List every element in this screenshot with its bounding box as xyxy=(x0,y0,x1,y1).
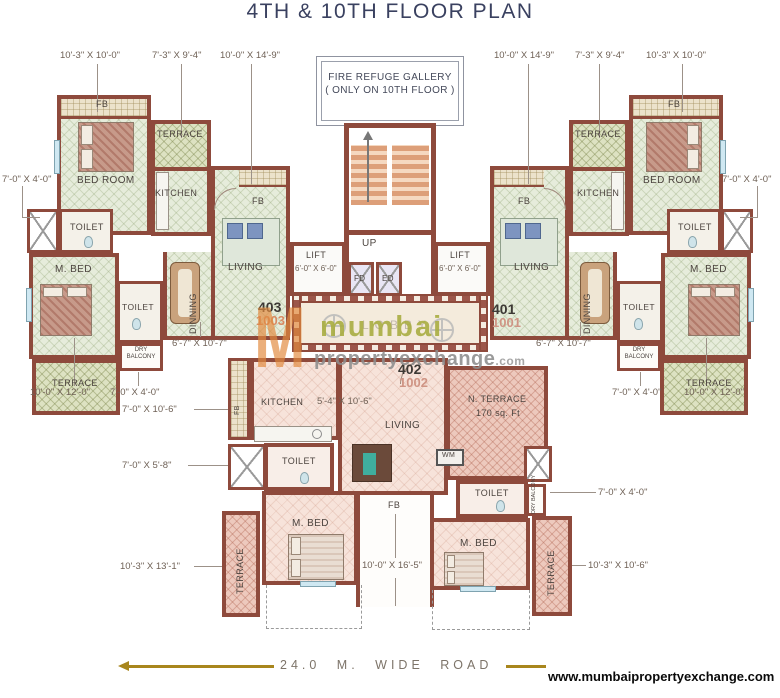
label-fb-bedroom-right: FB xyxy=(668,99,680,109)
label-wm: WM xyxy=(442,452,455,459)
watermark-brand2-text: propertyexchange xyxy=(314,348,495,370)
label-mbed-left: M. BED xyxy=(55,264,92,275)
label-terrace-center-right: TERRACE xyxy=(546,536,556,596)
flat-number-1002: 1002 xyxy=(399,375,428,390)
bed-icon xyxy=(444,552,484,586)
label-kitchen-center: KITCHEN xyxy=(261,397,303,407)
watermark-monogram: M xyxy=(254,302,306,375)
leader-line xyxy=(599,64,600,138)
dim-terrace-left: 10'-0" X 12'-0" xyxy=(30,387,90,398)
label-fb-kitchen-center: FB xyxy=(234,385,241,415)
dim-toilet-center-left: 7'-0" X 5'-8" xyxy=(122,460,171,471)
toilet-icon xyxy=(300,472,309,484)
label-dry-balcony-left: DRY BALCONY xyxy=(124,347,158,361)
label-toilet1-left: TOILET xyxy=(70,222,104,232)
label-n-terrace-area: 170 sq. Ft xyxy=(476,408,520,418)
label-dry-balcony-center-right: DRY BALCONY xyxy=(531,486,537,514)
leader-line xyxy=(251,64,252,184)
duct-shaft xyxy=(27,209,59,253)
leader-line xyxy=(580,322,581,337)
tv-cabinet-icon xyxy=(352,444,392,482)
wall-segment xyxy=(431,235,436,296)
toilet-icon xyxy=(496,500,505,512)
label-n-terrace: N. TERRACE xyxy=(468,394,526,404)
toilet-icon xyxy=(132,318,141,330)
label-fd: FD xyxy=(354,274,365,283)
dim-dinning-right: 6'-7" X 10'-7" xyxy=(536,338,591,349)
website-url: www.mumbaipropertyexchange.com xyxy=(548,669,774,684)
road-line xyxy=(128,665,274,668)
dim-kitchen-side-center: 7'-0" X 10'-6" xyxy=(122,404,177,415)
kitchen-counter-left xyxy=(156,172,169,230)
label-fb-living-left: FB xyxy=(252,196,264,206)
kitchen-counter-right xyxy=(611,172,624,230)
dim-living-right: 10'-0" X 14'-9" xyxy=(494,50,554,61)
leader-line xyxy=(682,64,683,112)
leader-line xyxy=(22,186,23,218)
dim-terrace-kitchen-right: 7'-3" X 9'-4" xyxy=(575,50,624,61)
dim-toilet-right: 7'-0" X 4'-0" xyxy=(722,174,771,185)
label-ed: ED xyxy=(382,274,394,283)
label-living-right: LIVING xyxy=(514,262,549,273)
label-fb-bedroom-left: FB xyxy=(96,99,108,109)
label-kitchen-right: KITCHEN xyxy=(577,188,619,198)
toilet-icon xyxy=(688,236,697,248)
label-terrace-top-right: TERRACE xyxy=(575,129,621,139)
label-fb-center: FB xyxy=(388,500,400,510)
leader-line xyxy=(528,64,529,184)
dim-fb-center: 10'-0" X 16'-5" xyxy=(362,560,422,571)
label-toilet-center-left: TOILET xyxy=(282,456,316,466)
stair-divider xyxy=(387,145,392,205)
lobby-balustrade-top xyxy=(292,294,488,303)
dim-toilet-left: 7'-0" X 4'-0" xyxy=(2,174,51,185)
window xyxy=(720,140,726,174)
road-line xyxy=(506,665,546,668)
watermark-tld: .com xyxy=(495,354,525,368)
duct-shaft xyxy=(228,444,266,490)
floor-plan: 4TH & 10TH FLOOR PLAN FIRE REFUGE GALLER… xyxy=(0,0,780,698)
page-title: 4TH & 10TH FLOOR PLAN xyxy=(0,0,780,24)
bed-icon xyxy=(78,122,134,172)
label-dry-balcony-right: DRY BALCONY xyxy=(622,347,656,361)
label-lift-left: LIFT xyxy=(306,250,326,260)
label-toilet-center-right: TOILET xyxy=(475,488,509,498)
dim-terrace-right: 10'-0" X 12'-0" xyxy=(684,387,744,398)
window xyxy=(748,288,754,322)
leader-line xyxy=(138,372,139,386)
fb-strip-living-left xyxy=(239,170,286,187)
dim-dry-balcony-center-right: 7'-0" X 4'-0" xyxy=(598,487,647,498)
room-toilet2-right xyxy=(617,281,663,343)
label-living-center: LIVING xyxy=(385,420,420,431)
fire-refuge-line1: FIRE REFUGE GALLERY xyxy=(316,72,464,83)
flat-number-1001: 1001 xyxy=(492,315,521,330)
label-dinning-left: DINNING xyxy=(188,272,198,334)
dim-kitchen-center: 5'-4" X 10'-6" xyxy=(317,396,372,407)
label-bedroom-left: BED ROOM xyxy=(77,175,135,186)
label-toilet2-right: TOILET xyxy=(623,302,655,312)
leader-line xyxy=(194,566,222,567)
leader-line xyxy=(640,372,641,386)
sofa-icon xyxy=(500,218,558,266)
dim-lift-left: 6'-0" X 6'-0" xyxy=(295,264,337,273)
dim-dry-balcony-left: 7'-0" X 4'-0" xyxy=(110,387,159,398)
wall-segment xyxy=(344,235,349,296)
label-dinning-right: DINNING xyxy=(582,272,592,334)
bed-icon xyxy=(688,284,740,336)
sofa-icon xyxy=(222,218,280,266)
dim-bedroom-left: 10'-3" X 10'-0" xyxy=(60,50,120,61)
leader-line xyxy=(22,217,40,218)
label-lift-right: LIFT xyxy=(450,250,470,260)
leader-line xyxy=(395,578,396,606)
window xyxy=(300,581,336,587)
dim-terrace-center-left: 10'-3" X 13'-1" xyxy=(120,561,180,572)
label-mbed-center-right: M. BED xyxy=(460,538,497,549)
leader-line xyxy=(757,186,758,218)
dim-terrace-kitchen-left: 7'-3" X 9'-4" xyxy=(152,50,201,61)
label-terrace-center-left: TERRACE xyxy=(235,534,245,594)
leader-line xyxy=(740,217,758,218)
leader-line xyxy=(188,465,228,466)
window xyxy=(26,288,32,322)
label-mbed-right: M. BED xyxy=(690,264,727,275)
label-fb-living-right: FB xyxy=(518,196,530,206)
label-toilet2-left: TOILET xyxy=(122,302,154,312)
window xyxy=(54,140,60,174)
fire-refuge-line2: ( ONLY ON 10TH FLOOR ) xyxy=(316,85,464,96)
room-toilet-center-left xyxy=(264,443,334,491)
dim-bedroom-right: 10'-3" X 10'-0" xyxy=(646,50,706,61)
window xyxy=(460,586,496,592)
label-mbed-center-left: M. BED xyxy=(292,518,329,529)
label-terrace-top-left: TERRACE xyxy=(157,129,203,139)
label-bedroom-right: BED ROOM xyxy=(643,175,701,186)
dim-terrace-center-right: 10'-3" X 10'-6" xyxy=(588,560,648,571)
room-toilet2-left xyxy=(117,281,163,343)
lobby-balustrade-right xyxy=(479,294,488,352)
dim-dinning-left: 6'-7" X 10'-7" xyxy=(172,338,227,349)
duct-shaft xyxy=(721,209,753,253)
leader-line xyxy=(395,514,396,558)
watermark-brand: mumbai xyxy=(320,311,443,344)
bed-icon xyxy=(646,122,702,172)
road-label: 24.0 M. WIDE ROAD xyxy=(280,658,492,672)
leader-line xyxy=(194,409,228,410)
bed-icon xyxy=(40,284,92,336)
leader-line xyxy=(181,64,182,138)
label-living-left: LIVING xyxy=(228,262,263,273)
dim-dry-balcony-right: 7'-0" X 4'-0" xyxy=(612,387,661,398)
room-toilet-center-right xyxy=(456,480,528,518)
projection-dashed-outline xyxy=(266,585,362,629)
toilet-icon xyxy=(634,318,643,330)
toilet-icon xyxy=(84,236,93,248)
stair-up-arrow xyxy=(367,140,369,202)
dim-living-left: 10'-0" X 14'-9" xyxy=(220,50,280,61)
dim-lift-right: 6'-0" X 6'-0" xyxy=(439,264,481,273)
bed-icon xyxy=(288,534,344,580)
sink-icon xyxy=(312,429,322,439)
label-kitchen-left: KITCHEN xyxy=(155,188,197,198)
leader-line xyxy=(550,492,596,493)
leader-line xyxy=(200,322,201,337)
stair-up-arrowhead xyxy=(363,131,373,140)
fb-strip-living-right xyxy=(494,170,544,187)
label-up: UP xyxy=(362,238,377,249)
leader-line xyxy=(572,565,586,566)
label-toilet1-right: TOILET xyxy=(678,222,712,232)
watermark-brand2: propertyexchange.com xyxy=(314,348,525,371)
projection-dashed-outline xyxy=(432,590,530,630)
duct-shaft xyxy=(524,446,552,482)
